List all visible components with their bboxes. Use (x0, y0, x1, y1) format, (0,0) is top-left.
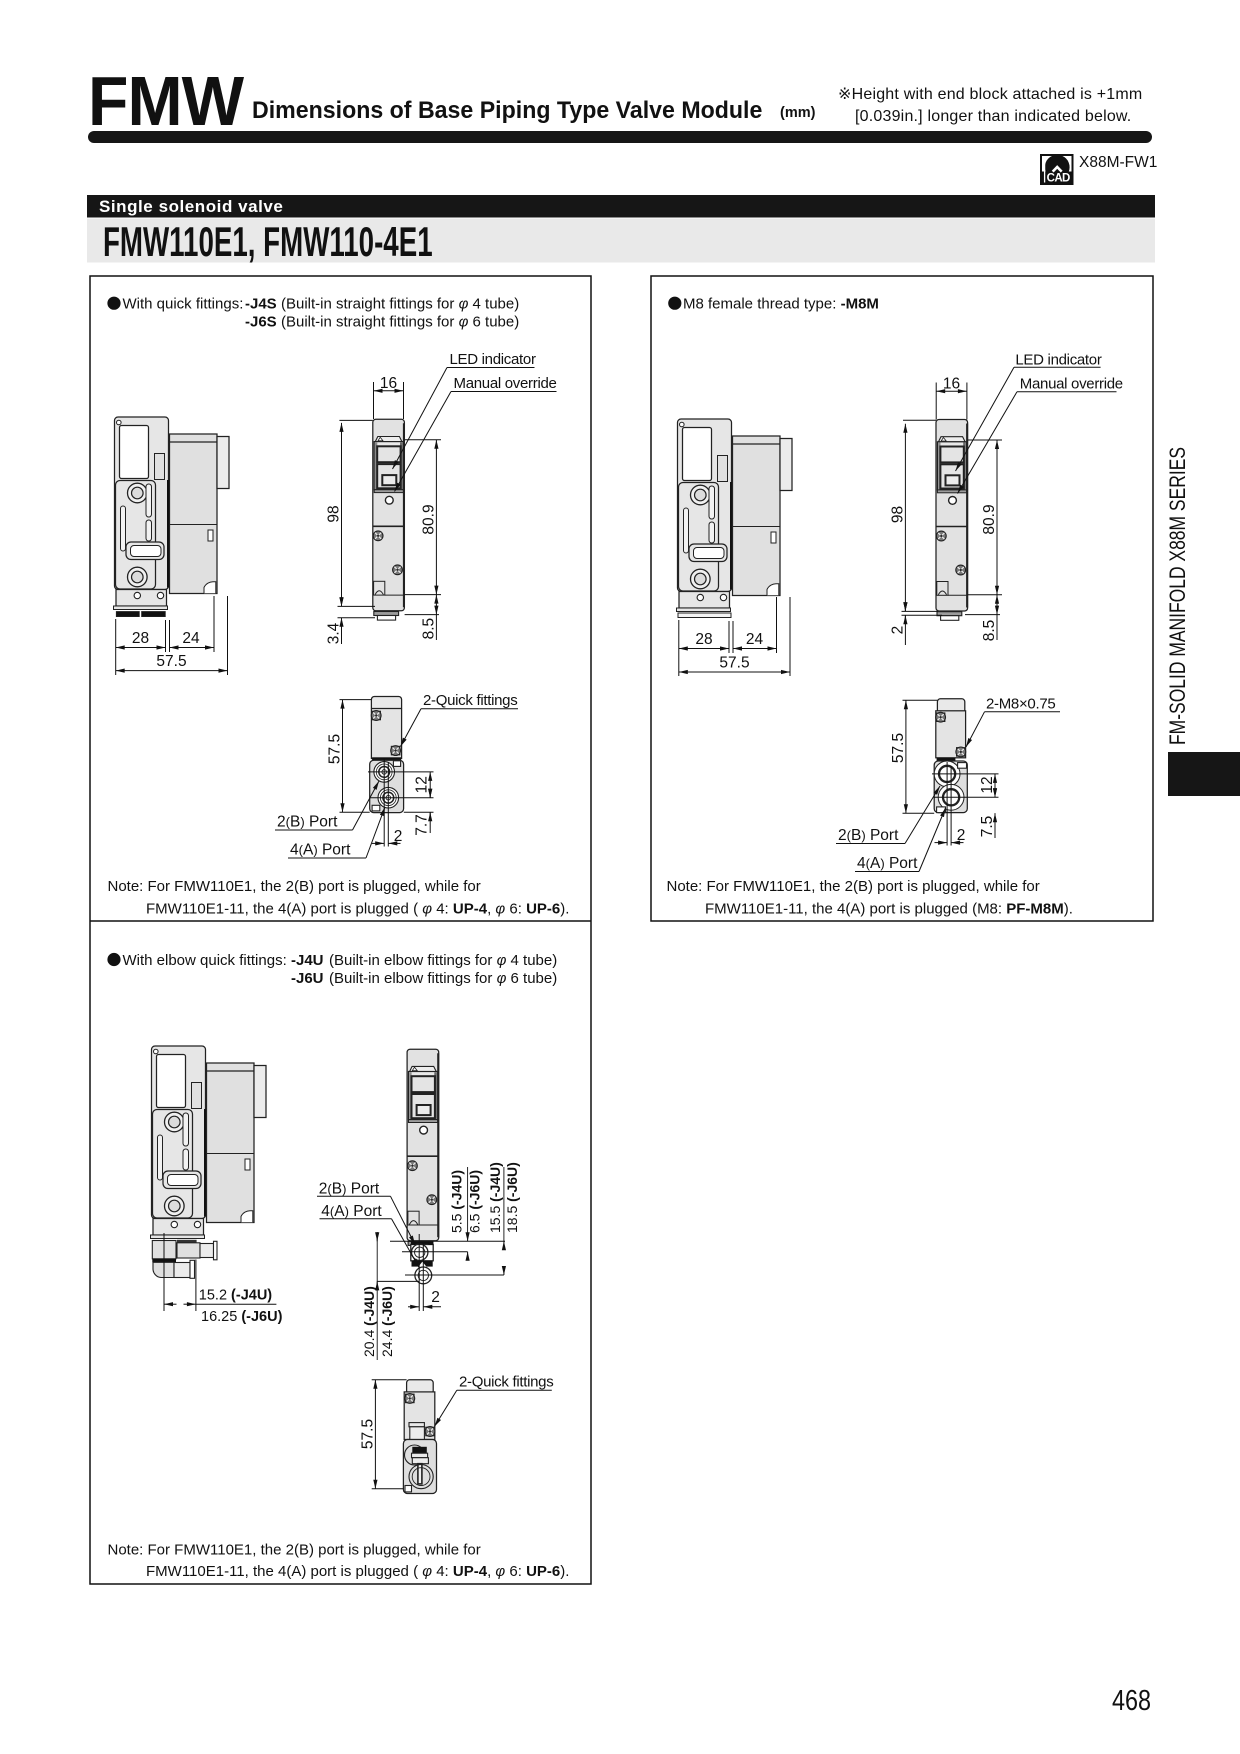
svg-text:15.2 (-J4U): 15.2 (-J4U) (199, 1287, 273, 1303)
svg-text:57.5: 57.5 (359, 1419, 376, 1449)
svg-text:80.9: 80.9 (981, 504, 998, 534)
svg-text:28: 28 (132, 630, 149, 647)
svg-text:Note: For FMW110E1, the 2(B) p: Note: For FMW110E1, the 2(B) port is plu… (108, 1542, 481, 1559)
svg-text:Manual override: Manual override (1020, 376, 1123, 393)
svg-text:4(A) Port: 4(A) Port (290, 842, 351, 859)
svg-text:80.9: 80.9 (420, 504, 437, 534)
svg-text:5.5 (-J4U): 5.5 (-J4U) (449, 1170, 465, 1233)
svg-text:24: 24 (182, 630, 200, 647)
svg-text:98: 98 (889, 506, 906, 523)
svg-text:15.5 (-J4U): 15.5 (-J4U) (487, 1162, 503, 1233)
svg-text:With quick fittings:: With quick fittings: (123, 296, 244, 313)
svg-text:(Built-in elbow fittings for φ: (Built-in elbow fittings for φ 6 tube) (329, 970, 557, 987)
svg-text:Note: For FMW110E1, the 2(B) p: Note: For FMW110E1, the 2(B) port is plu… (108, 878, 481, 895)
svg-text:4(A) Port: 4(A) Port (857, 855, 918, 872)
svg-text:2-Quick fittings: 2-Quick fittings (423, 692, 517, 709)
svg-text:2(B) Port: 2(B) Port (319, 1181, 380, 1198)
svg-text:-J6U: -J6U (291, 970, 324, 987)
svg-text:Single solenoid valve: Single solenoid valve (99, 197, 283, 216)
svg-text:Manual override: Manual override (454, 375, 557, 392)
svg-text:8.5: 8.5 (420, 618, 437, 640)
svg-text:2-Quick fittings: 2-Quick fittings (459, 1374, 553, 1391)
svg-text:20.4 (-J4U): 20.4 (-J4U) (361, 1286, 377, 1357)
svg-text:(Built-in straight fittings fo: (Built-in straight fittings for φ 4 tube… (281, 296, 519, 313)
svg-text:(Built-in straight fittings fo: (Built-in straight fittings for φ 6 tube… (281, 314, 519, 331)
svg-text:468: 468 (1112, 1685, 1151, 1717)
svg-text:FMW: FMW (88, 64, 244, 141)
svg-text:LED indicator: LED indicator (450, 351, 536, 368)
svg-text:16: 16 (943, 376, 960, 393)
svg-text:57.5: 57.5 (156, 653, 186, 670)
svg-text:2: 2 (889, 626, 906, 635)
svg-text:12: 12 (979, 776, 996, 793)
svg-text:16: 16 (380, 375, 397, 392)
svg-text:4(A) Port: 4(A) Port (321, 1203, 382, 1220)
svg-text:3.4: 3.4 (326, 622, 343, 644)
svg-text:FMW110E1-11, the 4(A) port is: FMW110E1-11, the 4(A) port is plugged (M… (705, 901, 1073, 918)
svg-text:FM-SOLID MANIFOLD X88M SERIES: FM-SOLID MANIFOLD X88M SERIES (1165, 447, 1190, 745)
svg-text:※Height with end block attache: ※Height with end block attached is +1mm (838, 86, 1142, 103)
svg-text:2: 2 (957, 827, 966, 844)
svg-text:8.5: 8.5 (981, 620, 998, 642)
svg-text:M8 female thread type: -M8M: M8 female thread type: -M8M (683, 296, 879, 313)
svg-text:7.7: 7.7 (414, 814, 431, 836)
svg-text:With elbow quick fittings:: With elbow quick fittings: (123, 952, 287, 969)
svg-text:16.25 (-J6U): 16.25 (-J6U) (201, 1309, 283, 1325)
svg-text:(Built-in elbow fittings for φ: (Built-in elbow fittings for φ 4 tube) (329, 952, 557, 969)
svg-text:Note: For FMW110E1, the 2(B) p: Note: For FMW110E1, the 2(B) port is plu… (667, 878, 1040, 895)
svg-text:2: 2 (431, 1289, 440, 1306)
svg-text:FMW110E1-11, the 4(A) port is: FMW110E1-11, the 4(A) port is plugged ( … (146, 901, 569, 918)
svg-text:2: 2 (394, 828, 403, 845)
svg-text:57.5: 57.5 (327, 734, 344, 764)
svg-text:57.5: 57.5 (890, 733, 907, 763)
svg-text:-J4U: -J4U (291, 952, 324, 969)
svg-text:FMW110E1-11, the 4(A) port is: FMW110E1-11, the 4(A) port is plugged ( … (146, 1563, 569, 1580)
svg-text:Dimensions of Base Piping Type: Dimensions of Base Piping Type Valve Mod… (252, 97, 762, 123)
svg-text:(mm): (mm) (780, 105, 816, 121)
svg-text:FMW110E1, FMW110-4E1: FMW110E1, FMW110-4E1 (103, 218, 433, 265)
svg-text:2(B) Port: 2(B) Port (838, 827, 899, 844)
svg-text:-J6S: -J6S (245, 314, 277, 331)
svg-text:7.5: 7.5 (979, 816, 996, 838)
svg-text:LED indicator: LED indicator (1015, 352, 1101, 369)
svg-text:12: 12 (414, 776, 431, 793)
svg-text:24: 24 (746, 631, 764, 648)
svg-text:28: 28 (695, 631, 712, 648)
svg-text:2(B) Port: 2(B) Port (277, 814, 338, 831)
svg-text:98: 98 (326, 505, 343, 522)
svg-text:57.5: 57.5 (719, 655, 749, 672)
svg-text:-J4S: -J4S (245, 296, 277, 313)
svg-text:[0.039in.] longer than indicat: [0.039in.] longer than indicated below. (855, 108, 1131, 125)
svg-text:6.5 (-J6U): 6.5 (-J6U) (467, 1170, 483, 1233)
svg-text:24.4 (-J6U): 24.4 (-J6U) (379, 1286, 395, 1357)
svg-text:2-M8×0.75: 2-M8×0.75 (986, 696, 1055, 713)
svg-text:X88M-FW1: X88M-FW1 (1079, 154, 1157, 171)
svg-text:18.5 (-J6U): 18.5 (-J6U) (504, 1162, 520, 1233)
svg-text:CAD: CAD (1047, 172, 1070, 184)
